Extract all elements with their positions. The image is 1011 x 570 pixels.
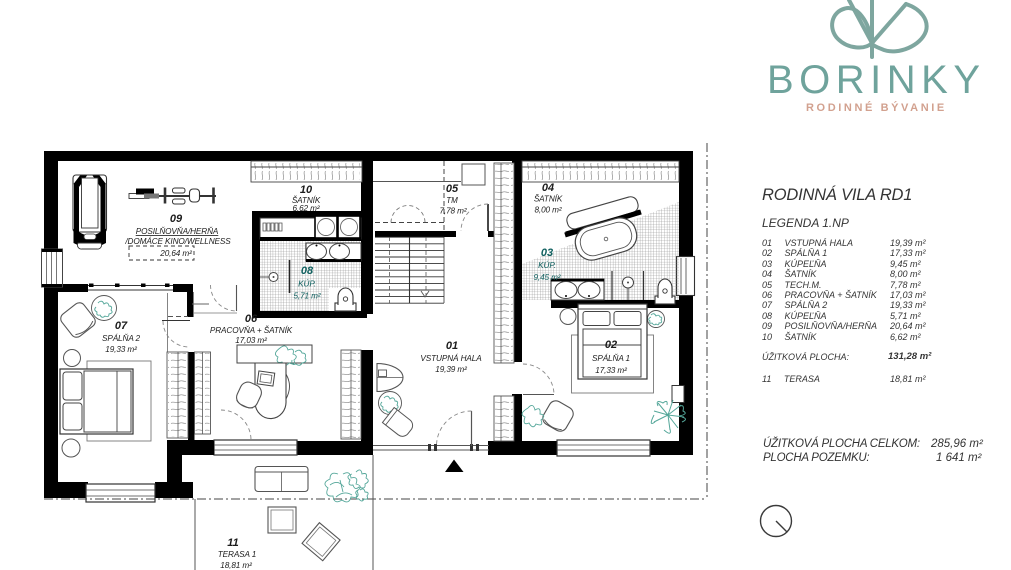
svg-text:03: 03 bbox=[541, 247, 553, 259]
svg-text:PRACOVŇA + ŠATNÍK: PRACOVŇA + ŠATNÍK bbox=[210, 325, 293, 335]
svg-text:17,33 m²: 17,33 m² bbox=[595, 366, 627, 375]
svg-text:9,45 m²: 9,45 m² bbox=[533, 273, 560, 282]
svg-text:TERASA 1: TERASA 1 bbox=[218, 550, 256, 559]
svg-text:04: 04 bbox=[542, 182, 554, 194]
svg-text:ŠATNÍK: ŠATNÍK bbox=[534, 194, 563, 204]
svg-text:KÚP.: KÚP. bbox=[538, 260, 556, 270]
svg-text:17,03 m²: 17,03 m² bbox=[235, 336, 267, 345]
svg-text:08: 08 bbox=[301, 265, 314, 277]
svg-text:11: 11 bbox=[227, 537, 238, 549]
svg-text:TM: TM bbox=[446, 196, 458, 205]
svg-text:8,00 m²: 8,00 m² bbox=[534, 206, 561, 215]
svg-text:07: 07 bbox=[115, 320, 128, 332]
svg-text:06: 06 bbox=[245, 313, 258, 325]
svg-text:POSILŇOVŇA/HERŇA: POSILŇOVŇA/HERŇA bbox=[136, 226, 219, 236]
svg-text:5,71 m²: 5,71 m² bbox=[293, 292, 320, 301]
svg-text:SPÁLŇA 2: SPÁLŇA 2 bbox=[102, 333, 141, 343]
svg-text:10: 10 bbox=[300, 184, 313, 196]
svg-text:6,62 m²: 6,62 m² bbox=[292, 204, 319, 213]
svg-text:/DOMÁCE KINO/WELLNESS: /DOMÁCE KINO/WELLNESS bbox=[124, 236, 231, 246]
svg-text:19,39 m²: 19,39 m² bbox=[435, 365, 467, 374]
svg-text:02: 02 bbox=[605, 339, 617, 351]
svg-text:7,78 m²: 7,78 m² bbox=[439, 207, 466, 216]
svg-text:SPÁLŇA 1: SPÁLŇA 1 bbox=[592, 353, 630, 363]
svg-text:19,33 m²: 19,33 m² bbox=[105, 345, 137, 354]
svg-text:20,64 m²: 20,64 m² bbox=[159, 249, 192, 258]
svg-text:05: 05 bbox=[446, 183, 459, 195]
svg-text:09: 09 bbox=[170, 213, 183, 225]
svg-text:VSTUPNÁ HALA: VSTUPNÁ HALA bbox=[420, 353, 482, 363]
svg-text:18,81 m²: 18,81 m² bbox=[220, 561, 252, 570]
svg-text:KÚP.: KÚP. bbox=[298, 279, 316, 289]
svg-text:01: 01 bbox=[446, 340, 458, 352]
